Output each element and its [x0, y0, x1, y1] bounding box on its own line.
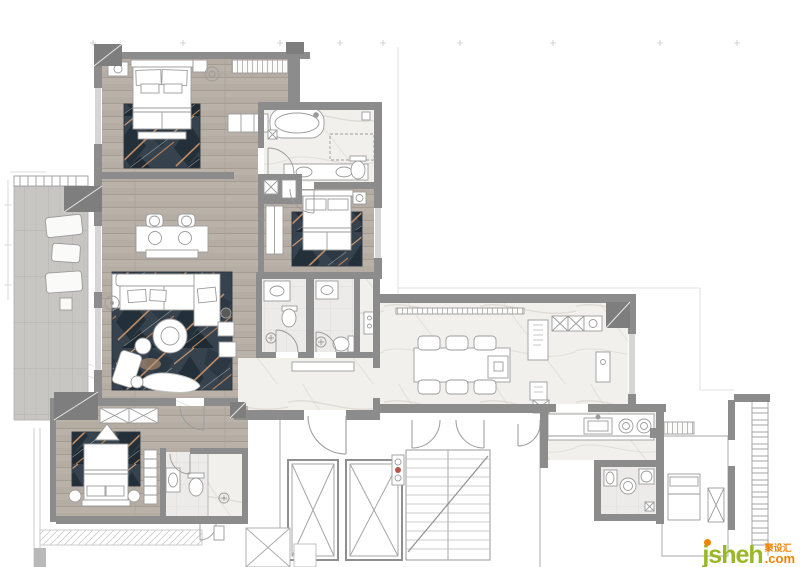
column	[230, 402, 246, 418]
table-end-tray	[488, 356, 508, 378]
bed-headboard	[301, 190, 353, 196]
entry-door	[308, 416, 346, 454]
coffee-table	[153, 319, 187, 353]
column	[64, 186, 102, 212]
watermark-domain-suffix: .com	[765, 553, 795, 565]
column	[286, 42, 304, 54]
nightstand	[193, 60, 207, 72]
kitchen	[548, 414, 654, 440]
pillow	[141, 84, 159, 93]
window-seat-band	[396, 308, 524, 314]
pillow	[106, 486, 124, 496]
tub-faucet	[314, 113, 319, 118]
study-table	[136, 226, 208, 252]
window	[94, 88, 102, 144]
pillow	[164, 84, 182, 93]
cushion	[128, 289, 147, 302]
column	[606, 302, 630, 328]
pouf	[128, 490, 140, 502]
dining-chair	[446, 336, 468, 350]
toilet	[351, 161, 365, 179]
window	[94, 308, 102, 370]
column	[54, 392, 98, 420]
toilet	[620, 478, 636, 494]
sink-cabinet	[316, 281, 338, 299]
dining-chair	[474, 336, 496, 350]
window	[628, 334, 636, 394]
lounge-chair	[45, 271, 82, 293]
sofa-seat	[164, 286, 194, 310]
toilet-tank	[350, 156, 366, 161]
pillow	[306, 199, 326, 210]
watermark-dot-icon	[704, 539, 711, 546]
toilet	[282, 309, 296, 327]
drying-rack	[664, 422, 694, 434]
floor-plan-drawing	[0, 0, 800, 567]
sink-cabinet	[264, 281, 290, 301]
nightstand	[353, 192, 366, 204]
shower-head	[362, 112, 370, 120]
bed-headboard	[131, 60, 193, 67]
bed-bench	[138, 132, 186, 139]
toilet	[189, 478, 203, 496]
rail-rungs	[752, 408, 768, 545]
side-table	[218, 322, 234, 336]
dining-chair	[418, 336, 440, 350]
pillow	[670, 477, 698, 486]
bed-headboard	[82, 500, 130, 506]
wardrobe	[232, 60, 296, 73]
lounge-chair	[51, 243, 80, 263]
pouf	[69, 490, 81, 502]
side-table	[219, 342, 236, 357]
watermark-brand: jsheh	[702, 546, 762, 566]
cushion	[197, 287, 216, 303]
dining-chair	[474, 380, 496, 394]
tall-cabinet	[596, 352, 610, 382]
lounge-chair	[45, 214, 83, 238]
pillow	[162, 70, 188, 86]
console-table	[292, 362, 354, 371]
bench	[146, 250, 198, 258]
side-table	[60, 298, 72, 310]
watermark: jsheh 聚设汇 .com	[702, 544, 795, 565]
column	[94, 44, 122, 66]
pillow	[136, 70, 162, 86]
pillow	[87, 486, 105, 496]
pillow	[328, 199, 348, 210]
window	[374, 208, 382, 258]
floor-plan-page: jsheh 聚设汇 .com	[0, 0, 800, 567]
annotation-box	[530, 382, 547, 400]
window	[94, 226, 102, 292]
dining-chair	[418, 380, 440, 394]
pouf	[131, 376, 143, 388]
door-swings	[412, 420, 540, 448]
side-table	[135, 338, 151, 354]
table-lamp	[221, 308, 231, 318]
cushion	[150, 290, 167, 302]
dining-chair	[446, 380, 468, 394]
counter-sink	[584, 316, 602, 331]
